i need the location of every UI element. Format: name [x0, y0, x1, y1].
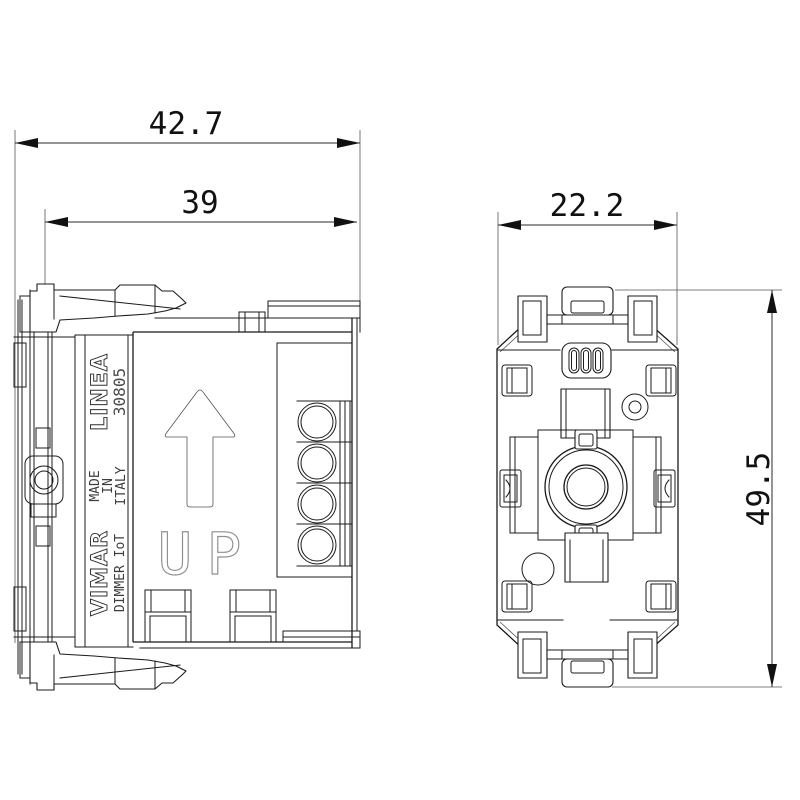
front-wire-hole — [522, 553, 554, 585]
side-body — [133, 301, 360, 648]
front-top-tab — [547, 287, 628, 324]
knob-left-arm — [510, 437, 538, 533]
side-terminals — [277, 343, 352, 577]
side-bottom-claw — [30, 642, 186, 690]
vent-slot — [502, 581, 532, 612]
vent-slot — [646, 365, 676, 396]
front-view — [497, 287, 678, 687]
arrowhead-left — [15, 138, 38, 148]
drawing-page: 42.7 39 22.2 49.5 — [0, 0, 800, 800]
front-bottom-tab — [547, 650, 628, 687]
arrowhead-right — [334, 217, 357, 227]
terminal-screw — [298, 403, 336, 441]
arrowhead-right — [337, 138, 360, 148]
label-italy: ITALY — [114, 466, 129, 505]
arrowhead-left — [45, 217, 68, 227]
arrowhead-right — [654, 220, 677, 230]
arrowhead-left — [498, 220, 521, 230]
front-screw-hole — [622, 394, 648, 420]
terminal-screw — [298, 444, 336, 482]
knob-ring — [545, 446, 627, 528]
top-clip — [239, 312, 265, 332]
knob-top-tab — [575, 430, 597, 449]
front-side-slots — [500, 470, 675, 507]
flange-hook — [14, 343, 26, 387]
side-flange — [14, 284, 75, 690]
up-letter-p: P — [207, 520, 242, 588]
up-letter-u: U — [158, 520, 193, 588]
label-article-number: 30805 — [110, 368, 129, 416]
front-lower-column — [565, 533, 608, 582]
label-model: DIMMER IoT — [113, 534, 128, 612]
mounting-hook — [518, 296, 547, 342]
front-vent-slots — [562, 343, 611, 378]
side-view: U P LINEA 30805 MADE IN ITALY VIMAR DIMM… — [14, 284, 360, 690]
terminal-screw — [298, 485, 336, 523]
vent-slot — [502, 365, 532, 396]
flange-hook — [14, 587, 26, 631]
snap-tab — [145, 590, 191, 642]
knob-right-arm — [633, 437, 661, 533]
dim-49-5-label: 49.5 — [741, 452, 777, 527]
knob-shaft — [564, 465, 608, 509]
side-top-claw — [30, 284, 186, 332]
technical-drawing: 42.7 39 22.2 49.5 — [0, 0, 800, 800]
vent-slot — [646, 581, 676, 612]
arrowhead-top — [767, 290, 777, 313]
snap-tab — [230, 590, 276, 642]
front-knob — [510, 430, 661, 544]
label-brand: VIMAR — [88, 530, 113, 616]
mounting-hook — [628, 296, 657, 342]
claw-screw-boss — [25, 456, 63, 517]
mounting-hook — [628, 632, 657, 678]
up-arrow-icon — [165, 390, 235, 507]
arrowhead-bottom — [767, 664, 777, 687]
terminal-screw — [298, 526, 336, 564]
mounting-hook — [518, 632, 547, 678]
dim-39-label: 39 — [181, 185, 218, 221]
dim-42-7-label: 42.7 — [149, 106, 224, 142]
dim-22-2-label: 22.2 — [550, 188, 625, 224]
